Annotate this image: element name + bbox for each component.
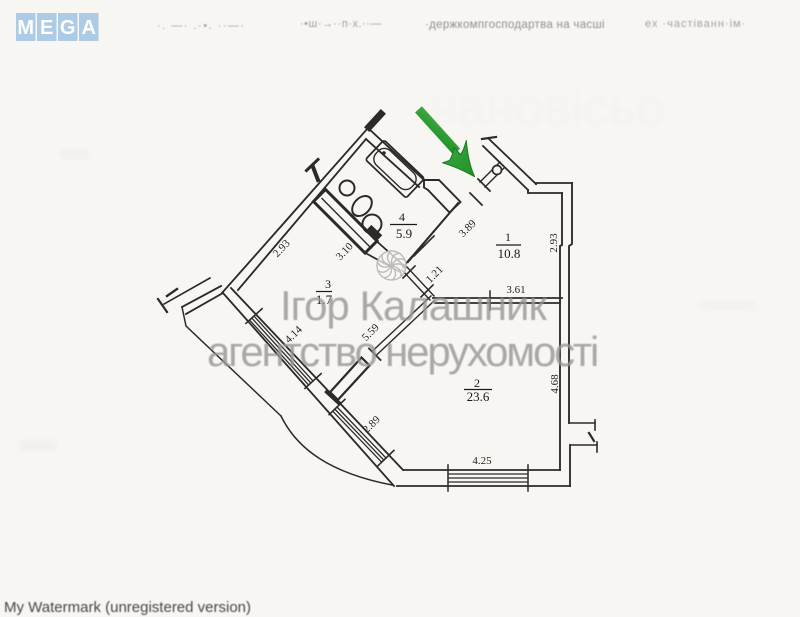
svg-text:4.68: 4.68: [549, 374, 561, 394]
svg-text:E: E: [40, 17, 53, 39]
svg-text:M: M: [17, 17, 34, 39]
svg-text:агентство нерухомості: агентство нерухомості: [207, 328, 597, 375]
svg-text:23.6: 23.6: [467, 389, 490, 404]
svg-text:4.25: 4.25: [472, 455, 492, 467]
svg-text:·•ш·→··п·х.··―: ·•ш·→··п·х.··―: [300, 18, 382, 30]
svg-text:A: A: [81, 17, 95, 39]
svg-text:My Watermark (unregistered ver: My Watermark (unregistered version): [4, 599, 251, 616]
svg-text:чановісьо: чановісьо: [430, 79, 665, 137]
svg-text:2: 2: [474, 376, 480, 390]
svg-text:1: 1: [505, 230, 511, 244]
svg-text:Ігор Калашник: Ігор Калашник: [280, 282, 547, 329]
svg-text:4: 4: [399, 210, 405, 224]
svg-text:10.8: 10.8: [498, 246, 521, 261]
svg-text:2.93: 2.93: [548, 233, 560, 253]
svg-text:ех ·частіванн·ім·: ех ·частіванн·ім·: [645, 18, 746, 30]
svg-text:5.9: 5.9: [396, 226, 412, 241]
svg-text:·держкомпгосподартва на часші: ·держкомпгосподартва на часші: [425, 19, 605, 31]
svg-text:·. ―· .·•. ··―·: ·. ―· .·•. ··―·: [157, 20, 246, 32]
svg-text:G: G: [60, 17, 76, 39]
